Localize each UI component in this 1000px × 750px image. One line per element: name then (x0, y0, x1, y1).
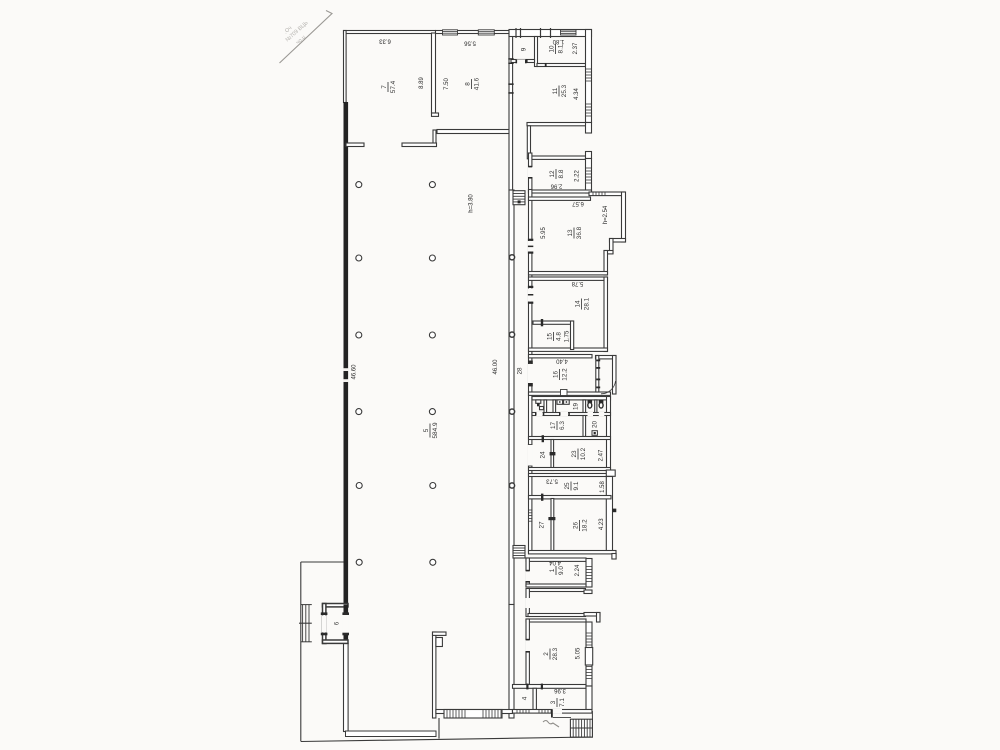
svg-text:9.0: 9.0 (558, 566, 565, 575)
svg-text:46.60: 46.60 (351, 364, 357, 380)
svg-text:17: 17 (550, 422, 557, 430)
svg-text:5.95: 5.95 (541, 227, 547, 239)
svg-text:1.80: 1.80 (552, 38, 564, 44)
svg-text:3: 3 (550, 700, 557, 704)
svg-text:16: 16 (553, 371, 560, 379)
svg-text:5.78: 5.78 (571, 280, 583, 286)
svg-text:6.57: 6.57 (572, 200, 584, 206)
svg-text:2: 2 (543, 652, 550, 656)
svg-text:9: 9 (521, 47, 528, 51)
svg-text:2.22: 2.22 (575, 170, 581, 182)
svg-text:24: 24 (540, 451, 547, 459)
svg-text:3.96: 3.96 (554, 687, 566, 693)
svg-text:8: 8 (465, 82, 472, 86)
svg-text:28: 28 (517, 367, 524, 375)
svg-text:2.96: 2.96 (550, 183, 562, 189)
svg-text:7.1: 7.1 (559, 698, 566, 707)
svg-text:1.58: 1.58 (600, 481, 606, 493)
svg-text:11: 11 (552, 87, 559, 94)
svg-text:6: 6 (334, 621, 341, 625)
svg-text:36.8: 36.8 (576, 226, 583, 239)
svg-text:4.8: 4.8 (556, 332, 563, 341)
svg-text:14: 14 (575, 300, 582, 308)
svg-text:5.56: 5.56 (464, 40, 476, 46)
svg-text:6.33: 6.33 (379, 38, 391, 44)
svg-text:2.37: 2.37 (573, 42, 579, 54)
svg-text:h=3.80: h=3.80 (469, 194, 475, 213)
svg-text:57.4: 57.4 (390, 80, 397, 93)
svg-text:4.34: 4.34 (574, 88, 580, 100)
svg-text:13: 13 (567, 229, 574, 237)
svg-text:5: 5 (423, 428, 430, 432)
svg-text:46.00: 46.00 (493, 359, 499, 375)
svg-text:h=2.54: h=2.54 (603, 205, 609, 224)
svg-text:9.1: 9.1 (573, 481, 580, 490)
svg-text:4.04: 4.04 (549, 559, 561, 565)
svg-text:1: 1 (549, 568, 556, 572)
svg-text:6.3: 6.3 (559, 421, 566, 430)
svg-text:7: 7 (381, 85, 388, 89)
svg-text:28.1: 28.1 (584, 297, 591, 310)
svg-text:20: 20 (592, 421, 599, 429)
svg-text:10.2: 10.2 (580, 447, 587, 460)
svg-text:26: 26 (573, 522, 580, 530)
svg-text:8.1: 8.1 (558, 44, 565, 53)
svg-text:584.9: 584.9 (432, 422, 439, 438)
svg-text:4: 4 (522, 696, 529, 700)
svg-text:7.50: 7.50 (444, 78, 450, 90)
svg-text:4.23: 4.23 (599, 518, 605, 530)
svg-text:4.40: 4.40 (556, 358, 568, 364)
svg-text:5.73: 5.73 (546, 478, 558, 484)
svg-text:27: 27 (539, 521, 546, 529)
svg-text:25: 25 (564, 482, 571, 490)
svg-text:8.89: 8.89 (419, 77, 425, 89)
svg-text:12.2: 12.2 (562, 368, 569, 381)
svg-text:25.3: 25.3 (561, 84, 568, 97)
svg-text:10: 10 (549, 45, 556, 53)
svg-text:41.6: 41.6 (474, 77, 481, 90)
svg-text:8.8: 8.8 (558, 169, 565, 178)
svg-text:15: 15 (547, 333, 554, 341)
svg-text:19: 19 (573, 403, 580, 411)
svg-text:1.75: 1.75 (565, 330, 571, 342)
svg-text:23: 23 (571, 450, 578, 458)
svg-text:5.05: 5.05 (576, 647, 582, 659)
svg-text:28.3: 28.3 (552, 647, 559, 660)
svg-text:18.2: 18.2 (582, 519, 589, 532)
svg-text:12: 12 (549, 170, 556, 178)
svg-text:2.47: 2.47 (599, 449, 605, 461)
svg-text:2.24: 2.24 (575, 564, 581, 576)
